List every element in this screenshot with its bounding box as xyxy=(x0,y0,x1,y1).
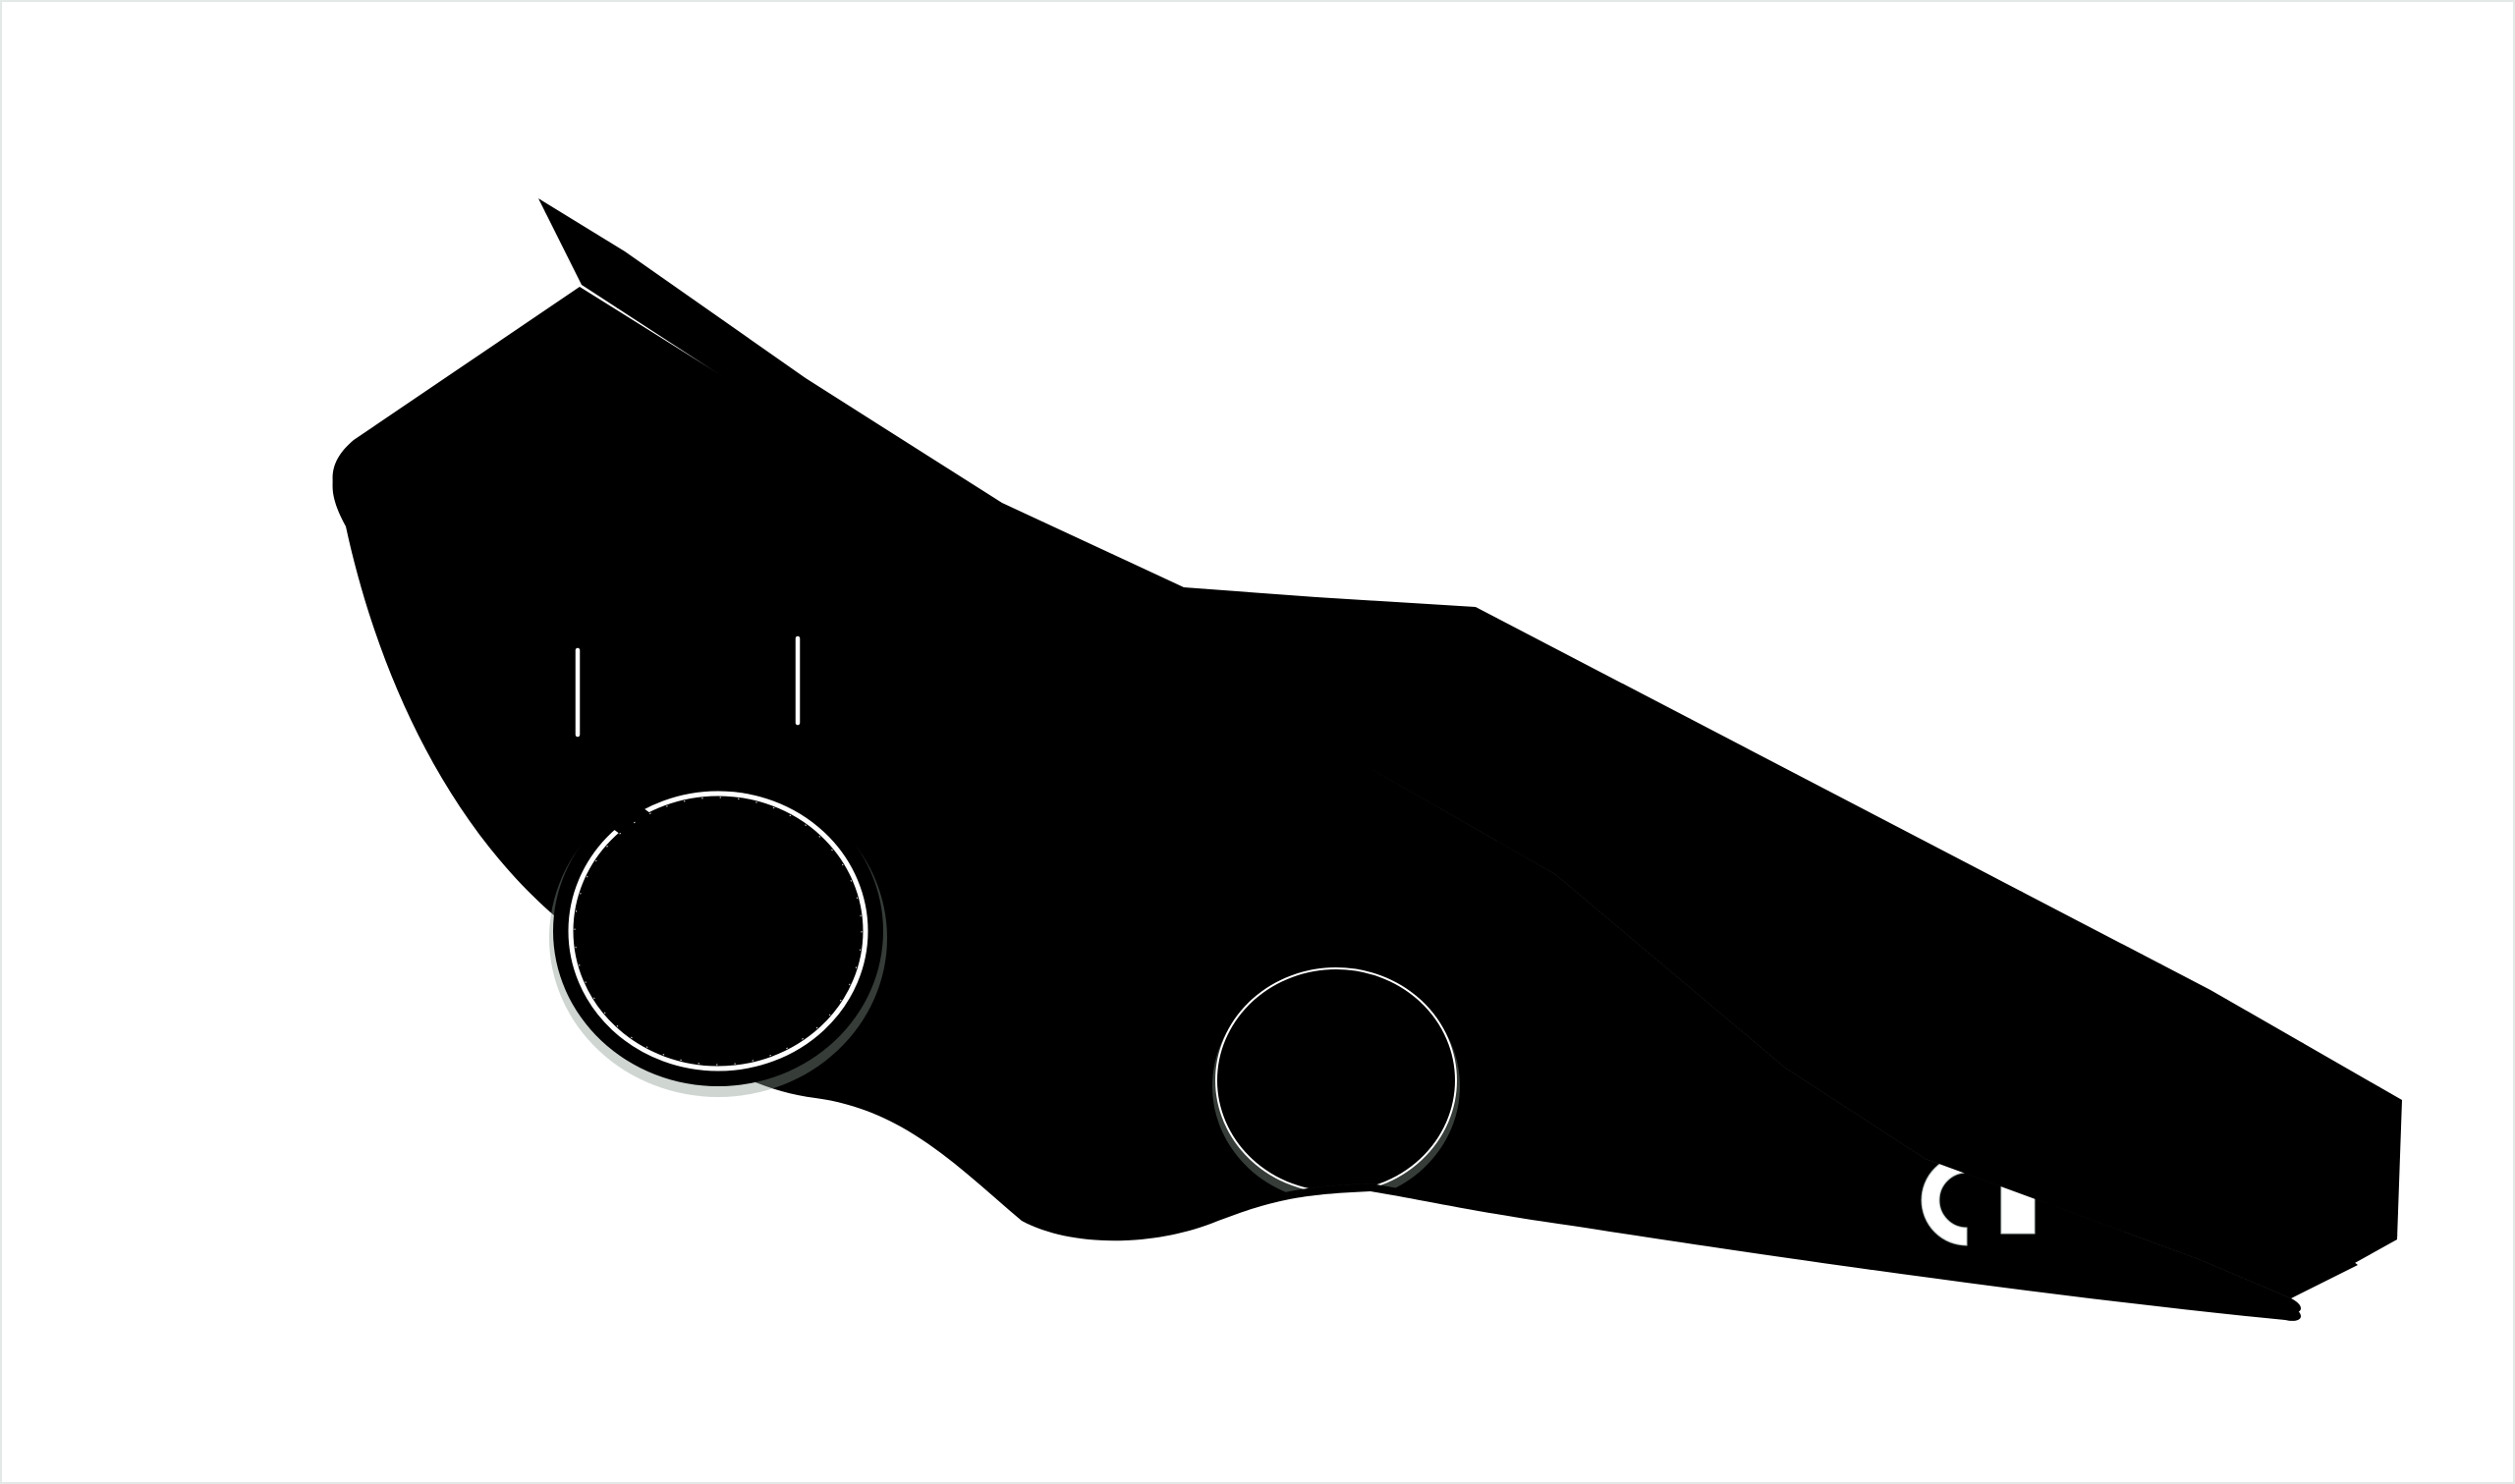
site-plan-canvas xyxy=(0,0,2515,1484)
sound-poles-circle xyxy=(1212,968,1460,1202)
far-right-houses xyxy=(2409,945,2515,1236)
amphitheater-floor xyxy=(594,831,846,1051)
plaza-site-illustration: { "meta": { "type": "architectural-axono… xyxy=(0,0,2515,1484)
poles-floor xyxy=(1234,993,1438,1180)
